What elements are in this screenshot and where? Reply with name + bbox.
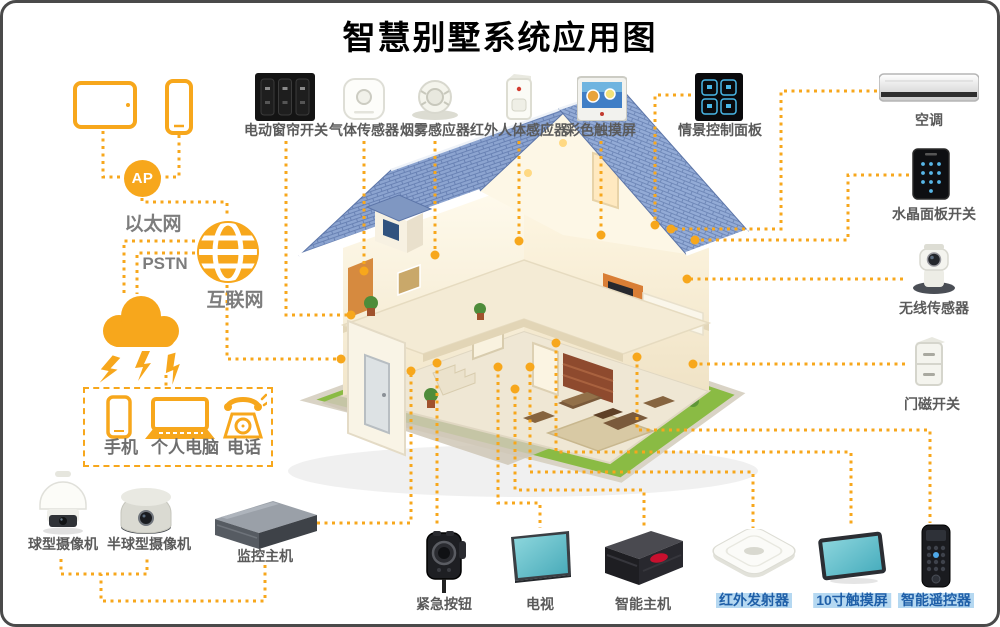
- smart-remote-label: 智能遥控器: [898, 593, 974, 608]
- curtain-switch-label: 电动窗帘开关: [244, 123, 328, 138]
- air-conditioner-icon: [879, 73, 979, 103]
- mobile-phone-label: 手机: [104, 439, 138, 458]
- air-conditioner-label: 空调: [915, 113, 943, 128]
- touchscreen-10inch-icon: [816, 525, 888, 585]
- crystal-panel-switch-label: 水晶面板开关: [892, 207, 976, 222]
- mobile-phone-icon: [106, 395, 132, 439]
- wireless-sensor-label: 无线传感器: [899, 301, 969, 316]
- smart-host-icon: [599, 531, 687, 589]
- ptz-dome-camera-icon: [33, 469, 93, 535]
- diagram-title: 智慧别墅系统应用图: [3, 11, 997, 59]
- crystal-panel-switch-icon: [911, 147, 951, 201]
- personal-computer-label: 个人电脑: [151, 439, 219, 458]
- scene-control-panel-label: 情景控制面板: [678, 123, 762, 138]
- ethernet-label: 以太网: [124, 215, 181, 236]
- internet-label: 互联网: [206, 291, 263, 312]
- curtain-switch-icon: [255, 73, 315, 121]
- mini-dome-camera-icon: [113, 485, 179, 535]
- mini-dome-camera-label: 半球型摄像机: [107, 537, 191, 552]
- tv-icon: [509, 529, 573, 585]
- color-touchscreen-label: 彩色触摸屏: [566, 123, 636, 138]
- cloud-icon: [95, 291, 185, 351]
- lightning-bolts-icon: [99, 349, 185, 399]
- color-touchscreen-icon: [577, 73, 627, 121]
- gas-sensor-icon: [342, 77, 386, 121]
- gas-sensor-label: 气体传感器: [329, 123, 399, 138]
- ap-badge: AP: [124, 160, 161, 197]
- diagram-canvas: 智慧别墅系统应用图: [0, 0, 1000, 627]
- ir-transmitter-icon: [707, 529, 801, 587]
- pir-sensor-icon: [504, 73, 534, 121]
- surveillance-host-icon: [215, 501, 317, 549]
- ir-transmitter-label: 红外发射器: [716, 593, 792, 608]
- smoke-sensor-label: 烟雾感应器: [400, 123, 470, 138]
- scene-control-panel-icon: [695, 73, 743, 121]
- telephone-icon: [221, 393, 267, 441]
- surveillance-host-label: 监控主机: [237, 549, 293, 564]
- smart-remote-icon: [915, 523, 957, 589]
- door-magnet-switch-icon: [907, 335, 951, 387]
- emergency-button-icon: [419, 529, 469, 595]
- emergency-button-label: 紧急按钮: [416, 597, 472, 612]
- internet-globe-icon: [195, 219, 261, 285]
- tv-label: 电视: [526, 597, 554, 612]
- pstn-label: PSTN: [142, 255, 187, 274]
- door-magnet-switch-label: 门磁开关: [904, 397, 960, 412]
- personal-computer-icon: [141, 397, 219, 441]
- pir-sensor-label: 红外人体感应器: [470, 123, 568, 138]
- tablet-icon: [73, 81, 137, 129]
- telephone-label: 电话: [227, 439, 261, 458]
- smoke-sensor-icon: [408, 79, 462, 121]
- house-illustration: [288, 88, 758, 497]
- ptz-dome-camera-label: 球型摄像机: [28, 537, 98, 552]
- wireless-sensor-icon: [905, 241, 963, 295]
- touchscreen-10inch-label: 10寸触摸屏: [813, 593, 891, 608]
- smartphone-icon: [165, 79, 193, 135]
- smart-host-label: 智能主机: [615, 597, 671, 612]
